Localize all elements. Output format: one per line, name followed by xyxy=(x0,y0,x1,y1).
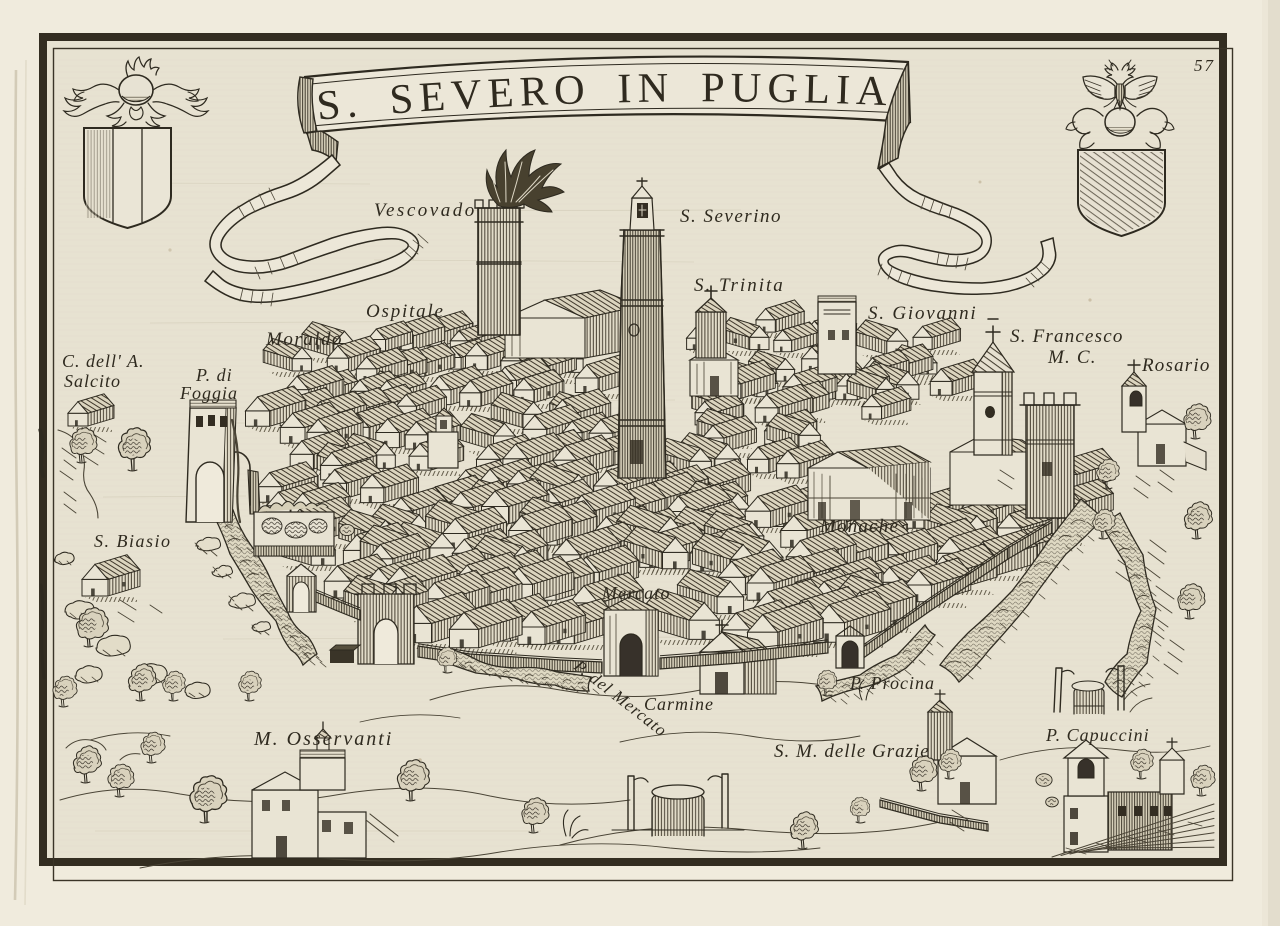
svg-text:P. Procina: P. Procina xyxy=(849,673,935,693)
svg-text:Monache: Monache xyxy=(819,516,899,537)
svg-text:Rosario: Rosario xyxy=(1141,355,1211,376)
svg-text:S. Francesco: S. Francesco xyxy=(1010,326,1124,347)
svg-text:Mercato: Mercato xyxy=(601,583,671,603)
svg-text:P. di: P. di xyxy=(195,365,233,385)
svg-text:M. Osservanti: M. Osservanti xyxy=(253,728,393,750)
svg-text:Ospitale: Ospitale xyxy=(366,301,445,322)
svg-text:S. M. delle Grazie: S. M. delle Grazie xyxy=(774,741,930,762)
svg-text:S. Severino: S. Severino xyxy=(680,206,782,227)
svg-text:Carmine: Carmine xyxy=(644,694,714,714)
svg-text:Foggia: Foggia xyxy=(179,383,238,403)
svg-text:S. Giovanni: S. Giovanni xyxy=(868,303,978,324)
svg-text:P. Capuccini: P. Capuccini xyxy=(1045,725,1150,745)
svg-text:Moraldo: Moraldo xyxy=(265,329,343,350)
svg-text:C. dell' A.: C. dell' A. xyxy=(62,351,145,371)
svg-text:Salcito: Salcito xyxy=(64,371,121,391)
svg-text:S. Biasio: S. Biasio xyxy=(94,531,172,551)
svg-text:S. Trinita: S. Trinita xyxy=(694,275,785,296)
svg-text:M. C.: M. C. xyxy=(1047,347,1097,368)
svg-text:Vescovado: Vescovado xyxy=(374,200,477,221)
svg-text:57: 57 xyxy=(1194,56,1215,75)
